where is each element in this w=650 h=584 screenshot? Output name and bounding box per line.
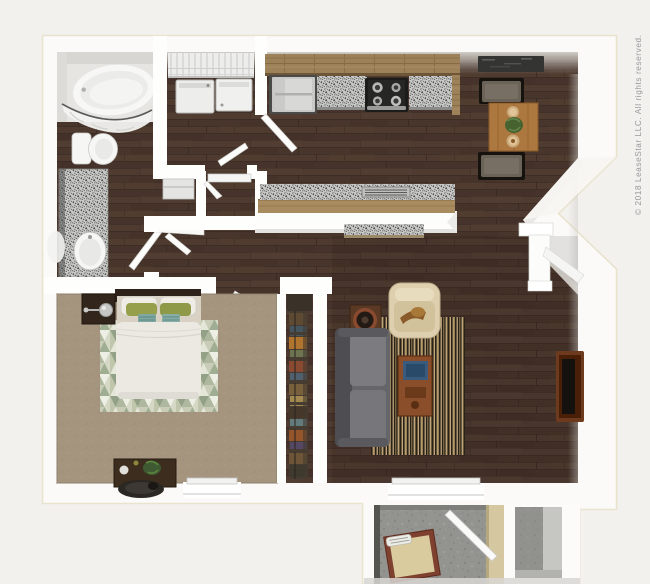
svg-text:© 2018 LeaseStar LLC. All righ: © 2018 LeaseStar LLC. All rights reserve… <box>634 34 643 215</box>
